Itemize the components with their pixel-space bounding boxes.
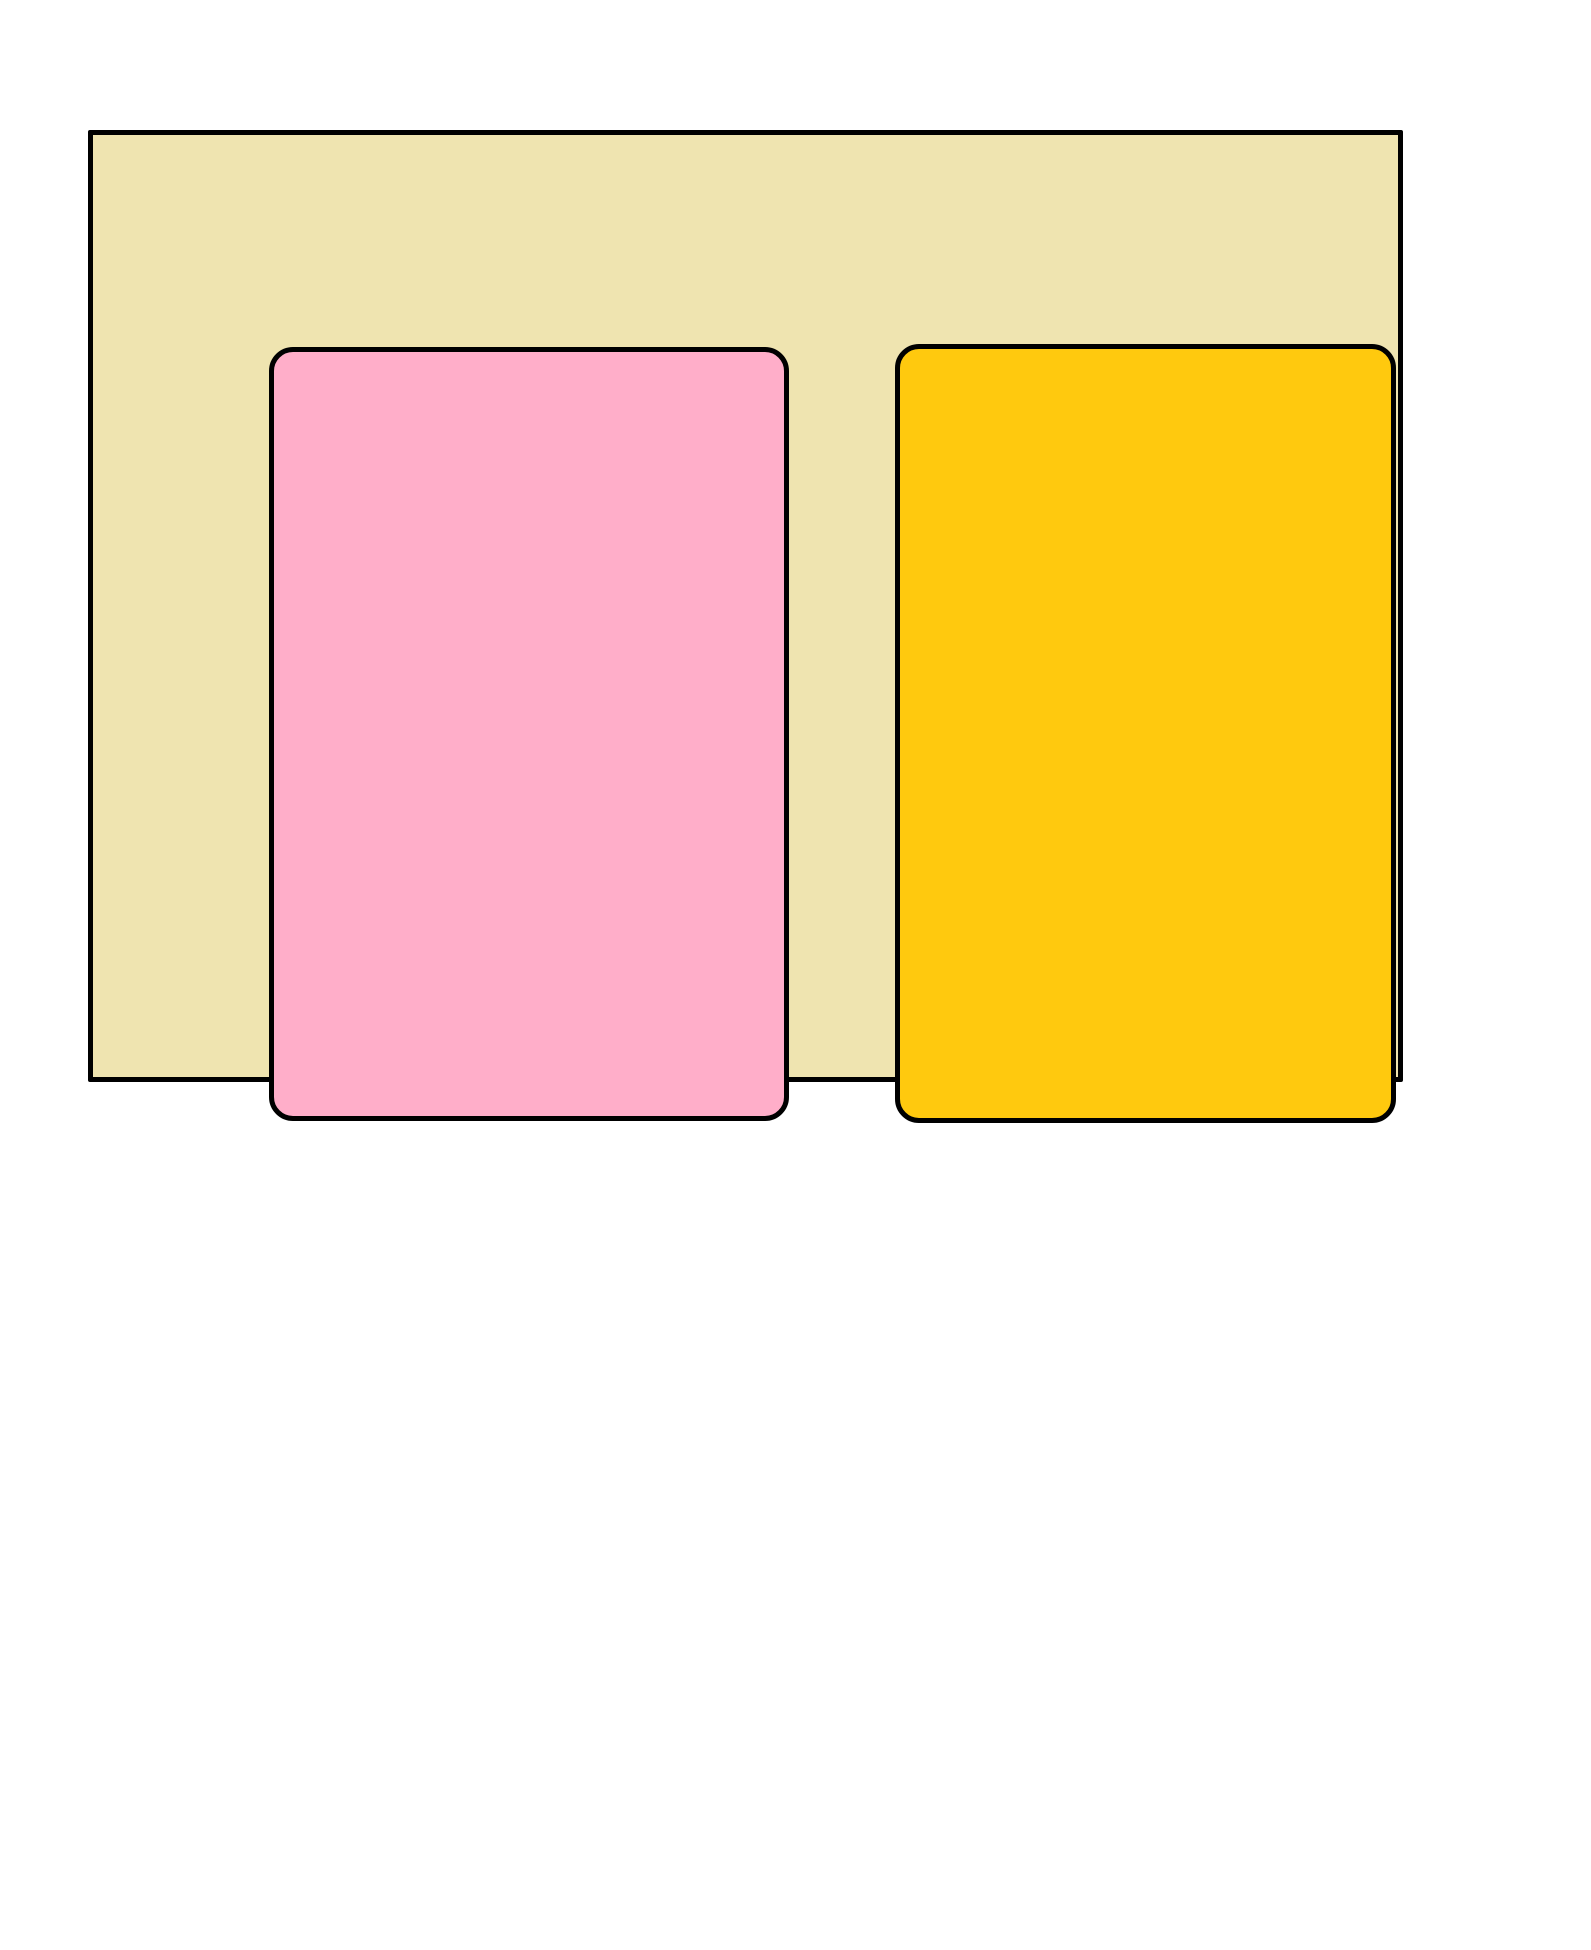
canvas-background <box>0 0 1591 1950</box>
outer-container-rectangle <box>88 130 1403 1082</box>
gold-rounded-rectangle <box>895 344 1396 1123</box>
pink-rounded-rectangle <box>269 347 789 1121</box>
